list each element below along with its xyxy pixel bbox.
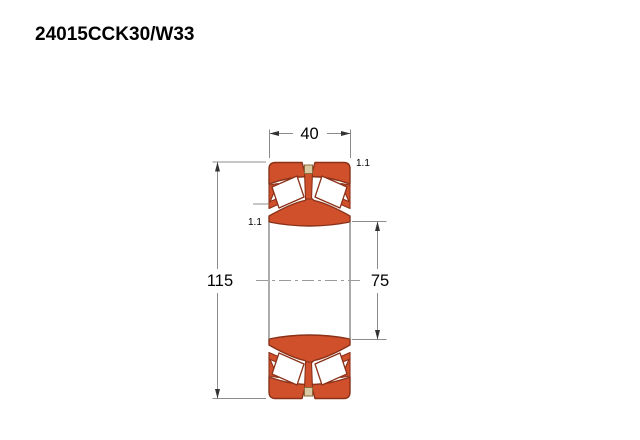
bore-diameter-value: 75 <box>371 272 389 290</box>
arrowhead-left <box>270 131 280 136</box>
arrowhead-down <box>375 330 380 340</box>
groove-block <box>305 165 313 174</box>
bearing-half-section-mirrored <box>269 335 350 399</box>
bearing-drawing: 40 115 75 1.1 1.1 <box>0 0 640 440</box>
chamfer-outer-label: 1.1 <box>356 158 370 169</box>
arrowhead-up <box>215 162 220 172</box>
chamfer-outer-value: 1.1 <box>356 158 370 169</box>
arrowhead-down <box>215 389 220 399</box>
chamfer-inner-label: 1.1 <box>248 204 268 228</box>
arrowhead-up <box>375 222 380 232</box>
page: 24015CCK30/W33 <box>0 0 640 440</box>
chamfer-inner-value: 1.1 <box>248 217 262 228</box>
width-value: 40 <box>300 125 318 143</box>
cage-center-wedge <box>305 172 313 199</box>
outer-diameter-value: 115 <box>207 272 233 290</box>
arrowhead-right <box>341 131 351 136</box>
bearing-half-section <box>269 163 350 227</box>
dimension-width: 40 <box>270 125 351 158</box>
